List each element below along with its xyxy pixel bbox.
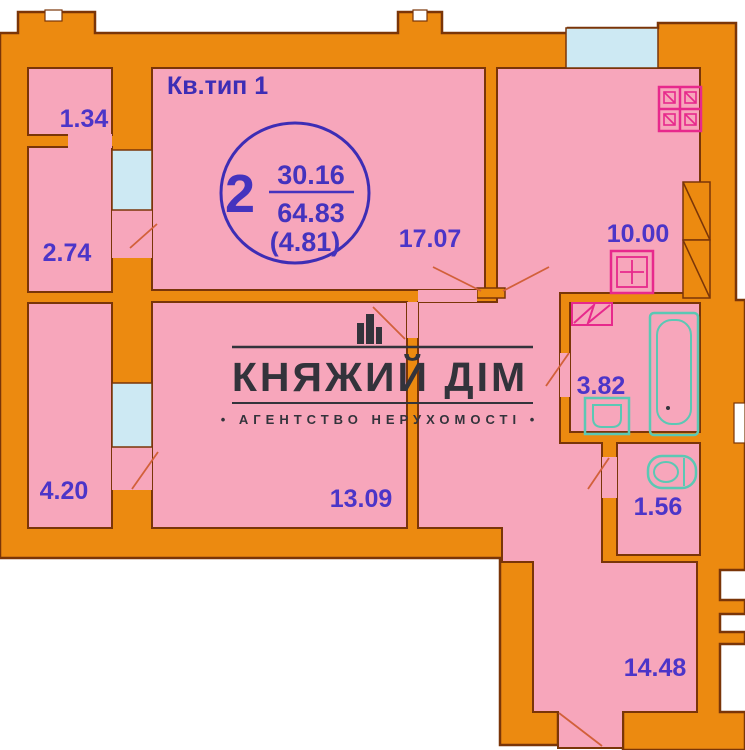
- apartment-living-area: 30.16: [277, 160, 345, 190]
- door-opening: [602, 457, 617, 498]
- opening-loggia: [68, 134, 112, 148]
- room-label-kitchen: 10.00: [607, 220, 670, 248]
- door-opening: [407, 302, 418, 338]
- room-loggia-middle: [28, 147, 112, 292]
- room-label-hallway: 14.48: [624, 654, 687, 682]
- window: [112, 150, 152, 210]
- window: [112, 383, 152, 447]
- room-label-loggia-upper: 1.34: [60, 105, 109, 133]
- floor-plan-svg: КНЯЖИЙ ДІМ • АГЕНТСТВО НЕРУХОМОСТІ • Кв.…: [0, 0, 745, 750]
- apartment-room-count: 2: [225, 164, 255, 224]
- apartment-total-area: 64.83: [277, 198, 345, 228]
- door-opening: [418, 290, 477, 302]
- room-label-bathroom: 3.82: [577, 372, 626, 400]
- wall-notch: [734, 403, 745, 443]
- room-label-loggia-middle: 2.74: [43, 239, 92, 267]
- window: [566, 28, 658, 68]
- room-label-wc: 1.56: [634, 493, 683, 521]
- crenellation-notch: [413, 10, 427, 21]
- apartment-extra-area: (4.81): [270, 227, 341, 257]
- room-label-bedroom: 13.09: [330, 485, 393, 513]
- crenellation-notch: [45, 10, 62, 21]
- agency-tagline: • АГЕНТСТВО НЕРУХОМОСТІ •: [221, 412, 540, 427]
- agency-name: КНЯЖИЙ ДІМ: [232, 354, 528, 400]
- wall-foot: [477, 288, 505, 298]
- vent-shaft-icon: [683, 182, 710, 298]
- kitchen-sink-icon: [611, 251, 653, 293]
- floor-plan-page: КНЯЖИЙ ДІМ • АГЕНТСТВО НЕРУХОМОСТІ • Кв.…: [0, 0, 745, 750]
- plan-title: Кв.тип 1: [167, 72, 268, 100]
- room-label-living: 17.07: [399, 225, 462, 253]
- room-label-loggia-lower: 4.20: [40, 477, 89, 505]
